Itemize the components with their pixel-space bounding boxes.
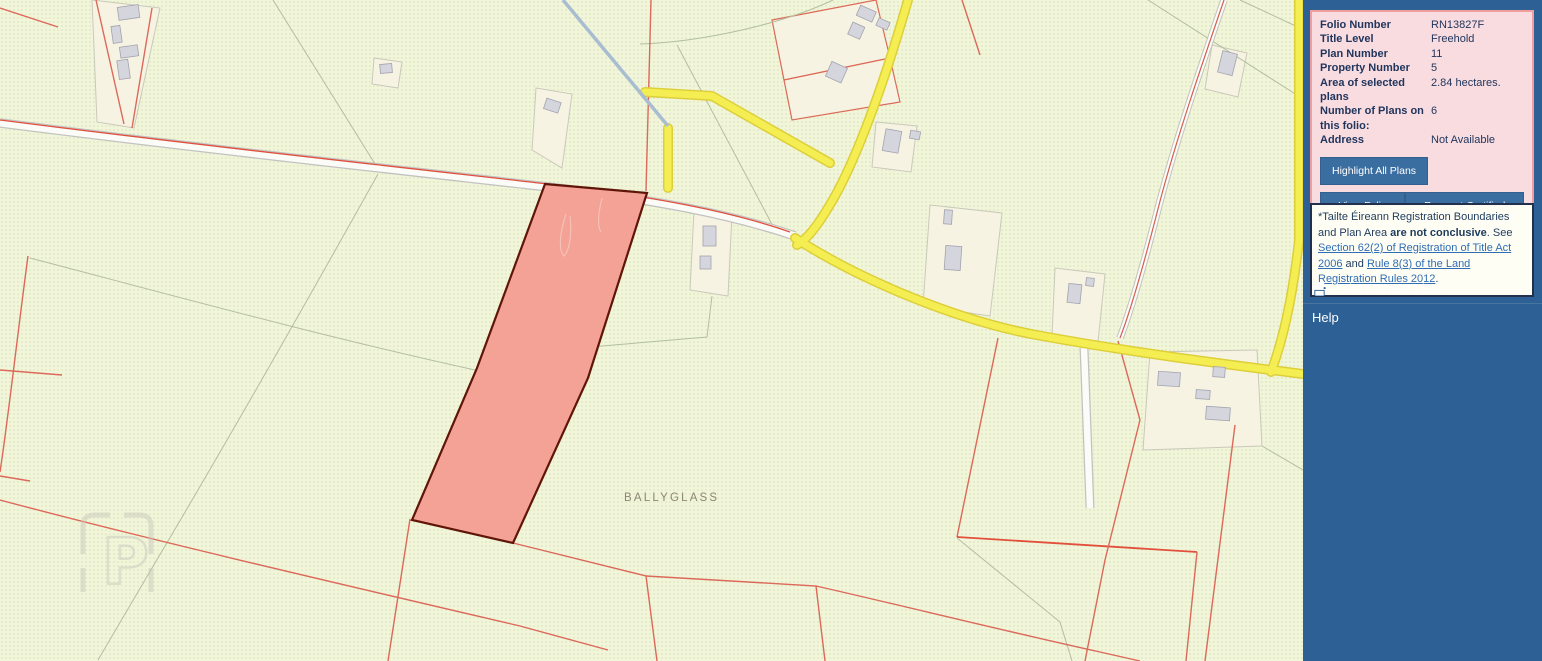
disclaimer-text: . See xyxy=(1487,227,1513,239)
folio-row: Folio Number RN13827F xyxy=(1320,18,1524,32)
plan-number-label: Plan Number xyxy=(1320,47,1427,61)
buildings xyxy=(111,5,1237,421)
folio-row: Area of selected plans 2.84 hectares. xyxy=(1320,76,1524,105)
print-current-view-label: Print Current View xyxy=(1336,281,1441,296)
townland-label: BALLYGLASS xyxy=(624,492,719,504)
red-outlined-parcels xyxy=(772,0,900,120)
address-value: Not Available xyxy=(1431,133,1524,147)
highlight-all-plans-button[interactable]: Highlight All Plans xyxy=(1320,157,1428,185)
watermark-logo: P xyxy=(83,515,151,600)
area-selected-plans-value: 2.84 hectares. xyxy=(1431,76,1524,105)
folio-row: Address Not Available xyxy=(1320,133,1524,147)
folio-row: Plan Number 11 xyxy=(1320,47,1524,61)
map-layers: BALLYGLASS P xyxy=(0,0,1303,661)
address-label: Address xyxy=(1320,133,1427,147)
folio-row: Property Number 5 xyxy=(1320,61,1524,75)
title-level-value: Freehold xyxy=(1431,32,1524,46)
folio-row: Title Level Freehold xyxy=(1320,32,1524,46)
plan-number-value: 11 xyxy=(1431,47,1524,61)
property-number-label: Property Number xyxy=(1320,61,1427,75)
print-current-view-button[interactable]: Print Current View xyxy=(1312,281,1532,296)
folio-number-label: Folio Number xyxy=(1320,18,1427,32)
folio-number-value: RN13827F xyxy=(1431,18,1524,32)
stream-line xyxy=(563,0,668,126)
printer-icon xyxy=(1312,282,1327,296)
area-selected-plans-label: Area of selected plans xyxy=(1320,76,1427,105)
disclaimer-bold-text: are not conclusive xyxy=(1390,227,1487,239)
info-sidebar: Folio Number RN13827F Title Level Freeho… xyxy=(1303,0,1542,661)
help-link[interactable]: Help xyxy=(1312,310,1339,325)
field-boundary-lines xyxy=(30,0,1303,661)
sidebar-divider xyxy=(1303,303,1542,304)
plans-count-value: 6 xyxy=(1431,104,1524,133)
land-registry-map-viewer: BALLYGLASS P Folio Number RN13827F Title… xyxy=(0,0,1542,661)
plans-count-label: Number of Plans on this folio: xyxy=(1320,104,1427,133)
registration-boundaries xyxy=(0,0,1235,661)
title-level-label: Title Level xyxy=(1320,32,1427,46)
folio-row: Number of Plans on this folio: 6 xyxy=(1320,104,1524,133)
property-number-value: 5 xyxy=(1431,61,1524,75)
disclaimer-text: and xyxy=(1342,258,1366,270)
watermark-letter: P xyxy=(102,526,149,600)
map-canvas[interactable]: BALLYGLASS P xyxy=(0,0,1303,661)
